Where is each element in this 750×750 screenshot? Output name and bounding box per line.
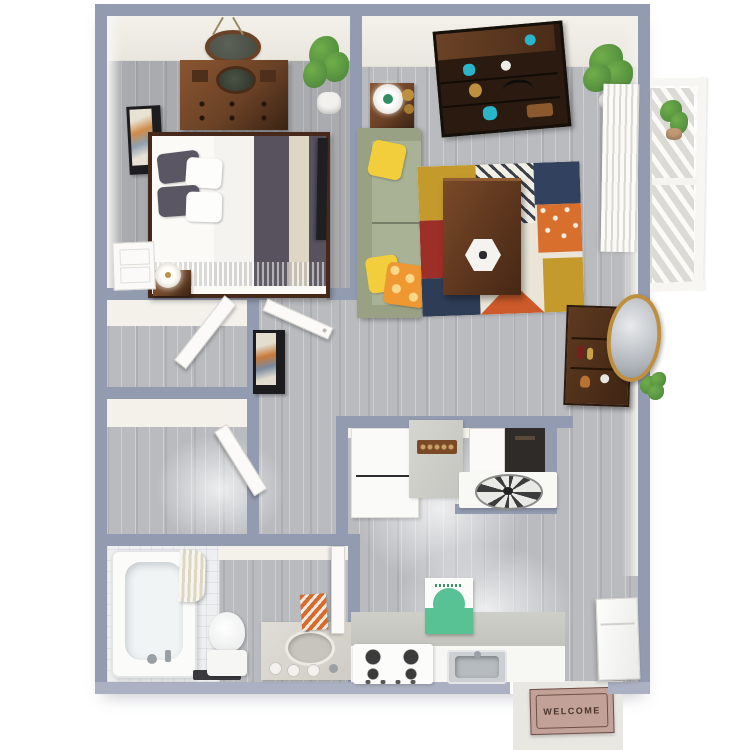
bookshelf-black-decor	[502, 78, 534, 100]
balcony-plant	[658, 100, 690, 146]
bathtub-basin	[125, 562, 183, 660]
bathtub-handle	[165, 650, 171, 662]
kitchen-sink	[447, 650, 507, 684]
sofa	[357, 128, 421, 318]
dresser-drawer-knobs	[188, 98, 280, 124]
wall-kitchen-left	[336, 416, 348, 546]
bookshelf-top	[436, 24, 556, 60]
bathtub-faucet	[147, 654, 157, 664]
dresser	[180, 60, 288, 130]
pantry-door	[469, 428, 505, 476]
outer-wall-bottom-left	[95, 682, 510, 694]
closet2-wall-face	[107, 399, 247, 427]
sofa-cushion-split	[372, 222, 421, 224]
stove	[353, 644, 433, 684]
rug-navy-patch-top	[533, 161, 580, 205]
bedroom-plant-pot	[317, 92, 341, 114]
sink-faucet	[474, 651, 481, 658]
vanity-jar-3	[307, 664, 320, 677]
toilet-tank	[207, 650, 247, 676]
dresser-tray	[216, 66, 256, 94]
bookshelf-teal-vase-2	[463, 63, 476, 76]
balcony	[650, 78, 708, 294]
refrigerator	[596, 597, 641, 680]
wine-bottle-1	[577, 345, 583, 359]
hex-tray	[465, 239, 501, 271]
yellow-pillow-top	[367, 139, 408, 181]
wine-glass	[600, 374, 609, 383]
outer-wall-bottom-right	[608, 682, 650, 694]
outer-wall-left	[95, 4, 107, 694]
hallway-framed-picture	[253, 330, 285, 394]
kitchen-marble-counter	[409, 420, 463, 498]
pillow-white-2	[185, 191, 222, 222]
vertical-blinds	[601, 84, 640, 253]
apartment-floorplan	[95, 4, 650, 694]
toilet	[207, 612, 247, 680]
wine-bottle-2	[587, 348, 593, 360]
rug-mustard-patch-bottom	[543, 257, 585, 312]
balcony-rail-bottom	[650, 281, 706, 292]
outer-wall-top	[95, 4, 650, 16]
nightstand-lamp	[155, 262, 181, 288]
toilet-lid	[209, 612, 245, 652]
wall-closets-right	[247, 288, 259, 546]
ceiling-fan	[475, 474, 543, 510]
bookshelf-gold-bell	[468, 83, 482, 98]
vanity-sink	[285, 630, 335, 666]
welcome-mat: WELCOME	[529, 687, 614, 735]
bedroom-tv	[316, 138, 328, 240]
decanter	[580, 375, 590, 387]
bathroom-door-leaf	[331, 546, 345, 634]
vanity-soap	[329, 664, 338, 673]
side-table-lamp	[373, 84, 403, 114]
sofa-armrest-top	[357, 128, 421, 141]
coffee-table	[443, 178, 521, 295]
towel	[300, 593, 328, 631]
utensil-rack	[417, 440, 457, 454]
balcony-rail-mid	[652, 178, 698, 185]
wall-bathroom-top	[95, 534, 360, 546]
bookshelf-white-mug	[500, 60, 511, 71]
stove-knobs	[363, 680, 423, 684]
dresser-box-left	[192, 70, 208, 82]
bedroom-door-panel	[112, 241, 156, 290]
gold-vase-1	[402, 89, 414, 101]
bookshelf-basket	[526, 103, 553, 118]
balcony-rail-top	[650, 78, 704, 86]
outside-shrub	[640, 372, 668, 402]
green-artwork	[425, 578, 473, 634]
bookshelf-teal-vase-3	[482, 106, 497, 121]
gold-vase-2	[404, 104, 414, 114]
vanity-jar-2	[287, 664, 300, 677]
rug-orange-dot-patch	[537, 203, 583, 253]
bookshelf	[433, 21, 572, 138]
vanity-jar-1	[269, 662, 282, 675]
wall-closet-divider	[95, 387, 259, 399]
dresser-box-right	[260, 70, 276, 82]
shower-curtain	[178, 550, 206, 603]
bedroom-plant	[303, 36, 351, 126]
welcome-mat-border	[536, 693, 609, 729]
